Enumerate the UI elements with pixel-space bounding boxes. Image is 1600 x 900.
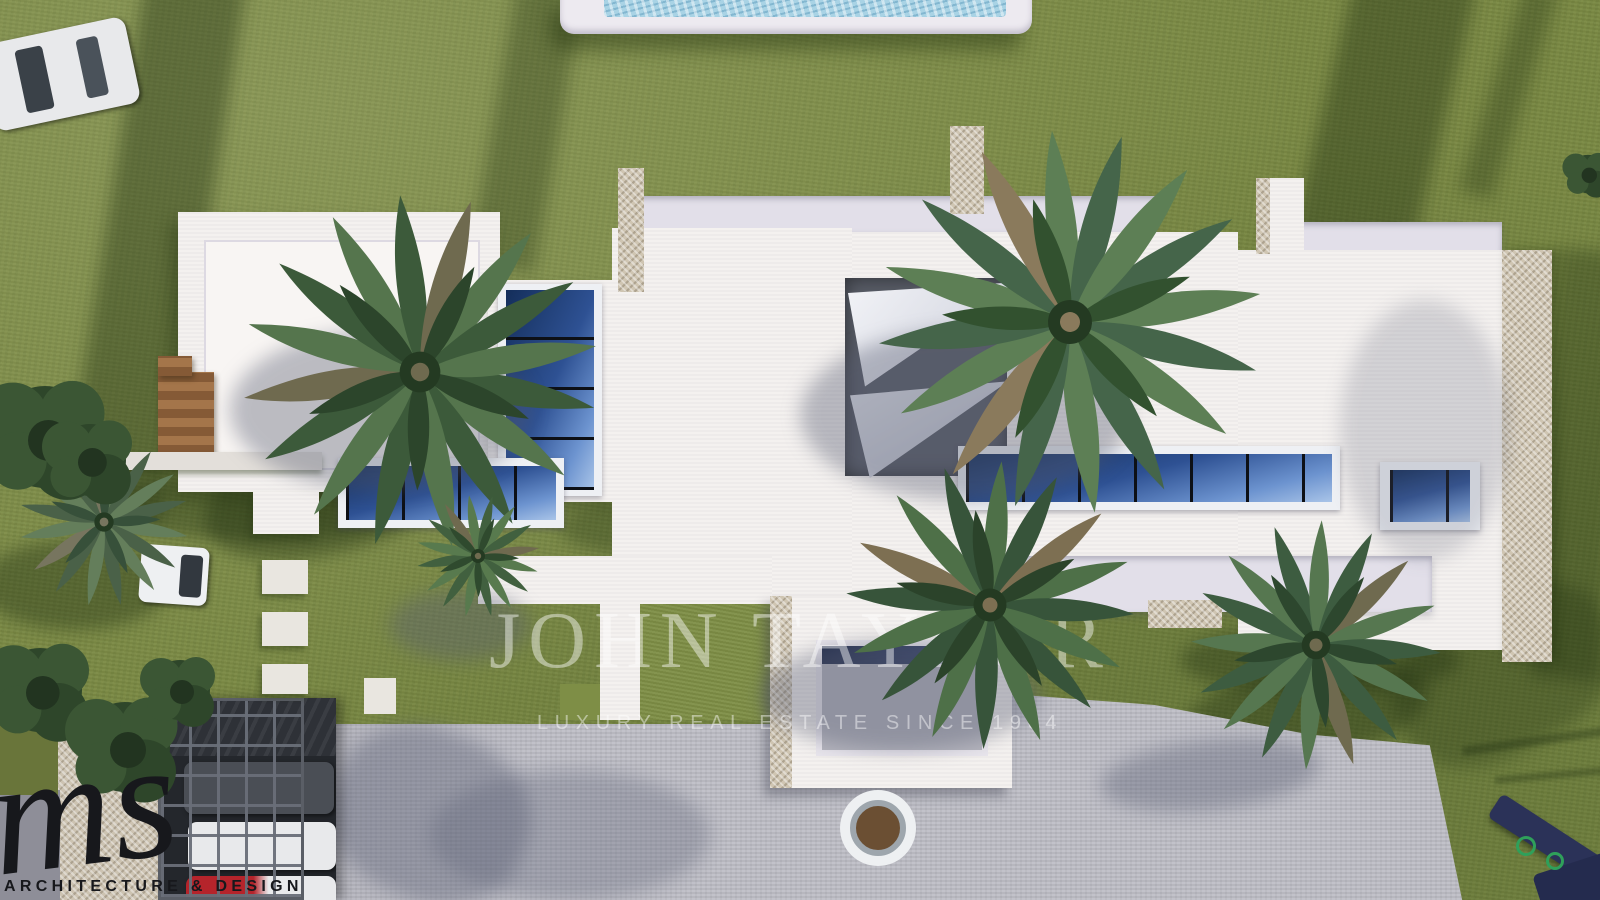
architect-monogram: ms: [0, 713, 186, 900]
stone-pillar: [1256, 178, 1270, 254]
architect-caption: ARCHITECTURE & DESIGN: [4, 878, 303, 896]
pool-water: [604, 0, 1006, 17]
tree-shadow-on-driveway: [430, 770, 710, 900]
gravel-border-right: [1502, 250, 1552, 662]
tree-shadow: [1495, 767, 1600, 784]
courtyard-wall: [600, 604, 640, 720]
courtyard-lawn: [640, 604, 777, 720]
parked-car-top-left: [0, 16, 142, 133]
stepping-stone: [262, 560, 308, 594]
stepping-stone: [262, 664, 308, 694]
wood-deck-step: [158, 356, 192, 376]
play-equipment-detail: [1546, 852, 1564, 870]
well-cover: [850, 800, 906, 856]
tree-shadow: [1459, 0, 1559, 200]
roof-chimney-block: [1268, 178, 1304, 254]
stepping-stone: [364, 678, 396, 714]
stepping-stone: [262, 612, 308, 646]
garden-bush-top-right: [1556, 142, 1600, 206]
garden-bush-cluster: [30, 400, 150, 520]
palm-tree-small-center: [404, 482, 552, 630]
aerial-villa-render: JOHN TAYLOR LUXURY REAL ESTATE SINCE 196…: [0, 0, 1600, 900]
architect-logo: ms ARCHITECTURE & DESIGN: [0, 724, 340, 900]
